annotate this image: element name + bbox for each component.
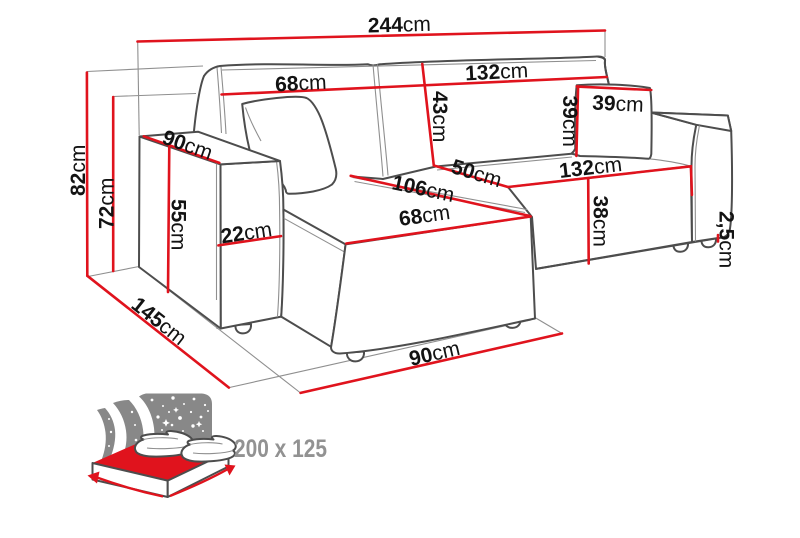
svg-text:132cm: 132cm — [465, 59, 529, 85]
svg-text:68cm: 68cm — [275, 71, 327, 97]
svg-text:55cm: 55cm — [167, 199, 190, 250]
svg-text:39cm: 39cm — [558, 96, 581, 147]
svg-text:38cm: 38cm — [589, 196, 612, 247]
svg-text:2,5cm: 2,5cm — [715, 211, 738, 268]
svg-text:39cm: 39cm — [592, 92, 644, 117]
svg-text:72cm: 72cm — [96, 178, 119, 229]
svg-text:43cm: 43cm — [428, 91, 451, 142]
svg-text:82cm: 82cm — [67, 145, 90, 196]
svg-text:244cm: 244cm — [368, 13, 432, 38]
svg-text:200 x 125: 200 x 125 — [234, 435, 327, 463]
